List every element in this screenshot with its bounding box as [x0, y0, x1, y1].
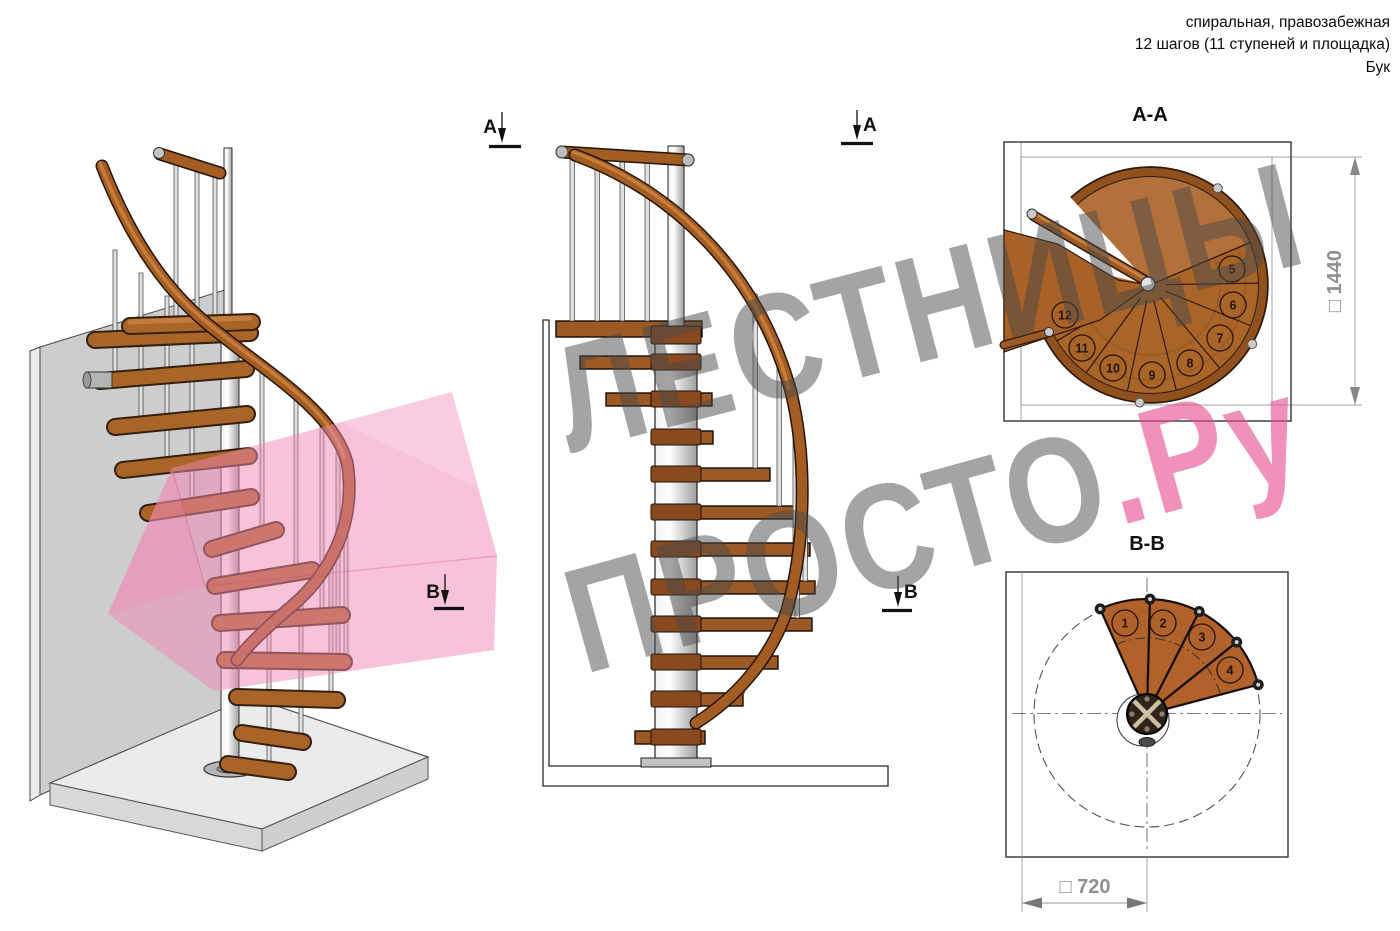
section-marker-letter: А	[863, 115, 877, 136]
dimension-720: □ 720	[1022, 858, 1147, 912]
wall-side-face	[30, 347, 40, 801]
svg-text:10: 10	[1106, 362, 1120, 376]
step-number-marker: 10	[1100, 355, 1126, 381]
step-number-marker: 4	[1217, 657, 1243, 683]
step-number-marker: 7	[1207, 325, 1233, 351]
section-arrow-icon	[498, 128, 506, 143]
section-view-bb: В-В	[1006, 533, 1288, 912]
section-marker-a-right: А	[841, 110, 877, 144]
rail-end-cap	[154, 148, 165, 159]
svg-text:3: 3	[1199, 631, 1206, 645]
section-marker-letter: А	[483, 117, 497, 138]
stair-type-label: спиральная, правозабежная	[1135, 12, 1390, 34]
title-block: спиральная, правозабежная 12 шагов (11 с…	[1135, 12, 1390, 79]
step-number-marker: 3	[1189, 624, 1215, 650]
svg-text:2: 2	[1160, 617, 1167, 631]
isometric-view	[30, 148, 497, 852]
svg-text:4: 4	[1227, 664, 1234, 678]
section-aa-title: А-А	[1132, 104, 1168, 126]
steps-count-label: 12 шагов (11 ступеней и площадка)	[1135, 34, 1390, 56]
material-label: Бук	[1135, 57, 1390, 79]
bb-hub-foot	[1139, 738, 1155, 747]
svg-text:7: 7	[1217, 332, 1224, 346]
section-marker-letter: В	[426, 582, 440, 603]
rail-end-cap	[682, 154, 694, 166]
dimension-label: □ 720	[1059, 876, 1110, 898]
section-arrow-icon	[853, 125, 861, 140]
section-marker-a-left: А	[483, 112, 521, 147]
svg-text:1: 1	[1122, 617, 1129, 631]
bb-center-hub	[1127, 694, 1167, 734]
wall-support-cap	[83, 372, 91, 388]
step-number-marker: 1	[1112, 610, 1138, 636]
dim-arrow-icon	[1127, 898, 1147, 909]
pole-base-elevation	[641, 758, 711, 767]
step-number-marker: 2	[1150, 610, 1176, 636]
drawing-sheet: А А В В А-А □ 1440	[0, 0, 1400, 931]
rail-end-cap	[556, 146, 568, 158]
dim-arrow-icon	[1022, 898, 1042, 909]
